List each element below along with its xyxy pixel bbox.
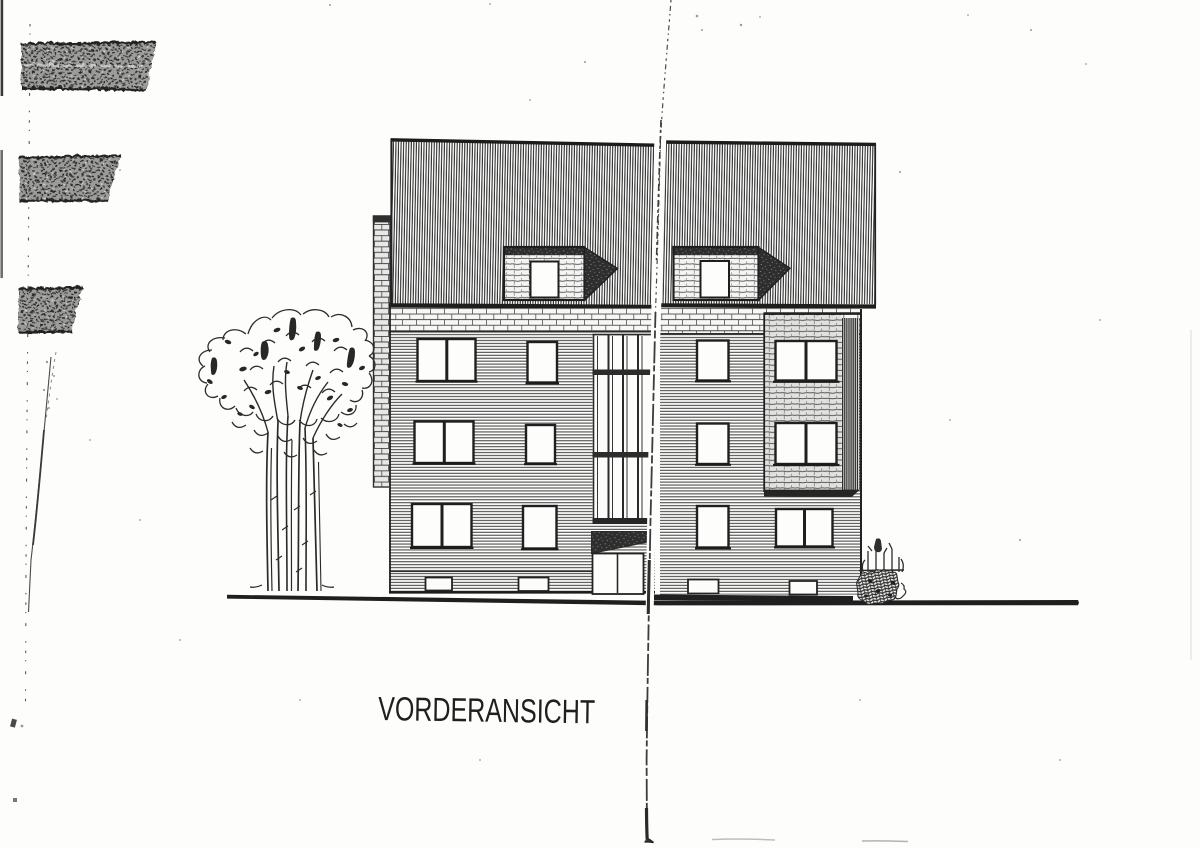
svg-text:VORDERANSICHT: VORDERANSICHT [378, 691, 596, 731]
